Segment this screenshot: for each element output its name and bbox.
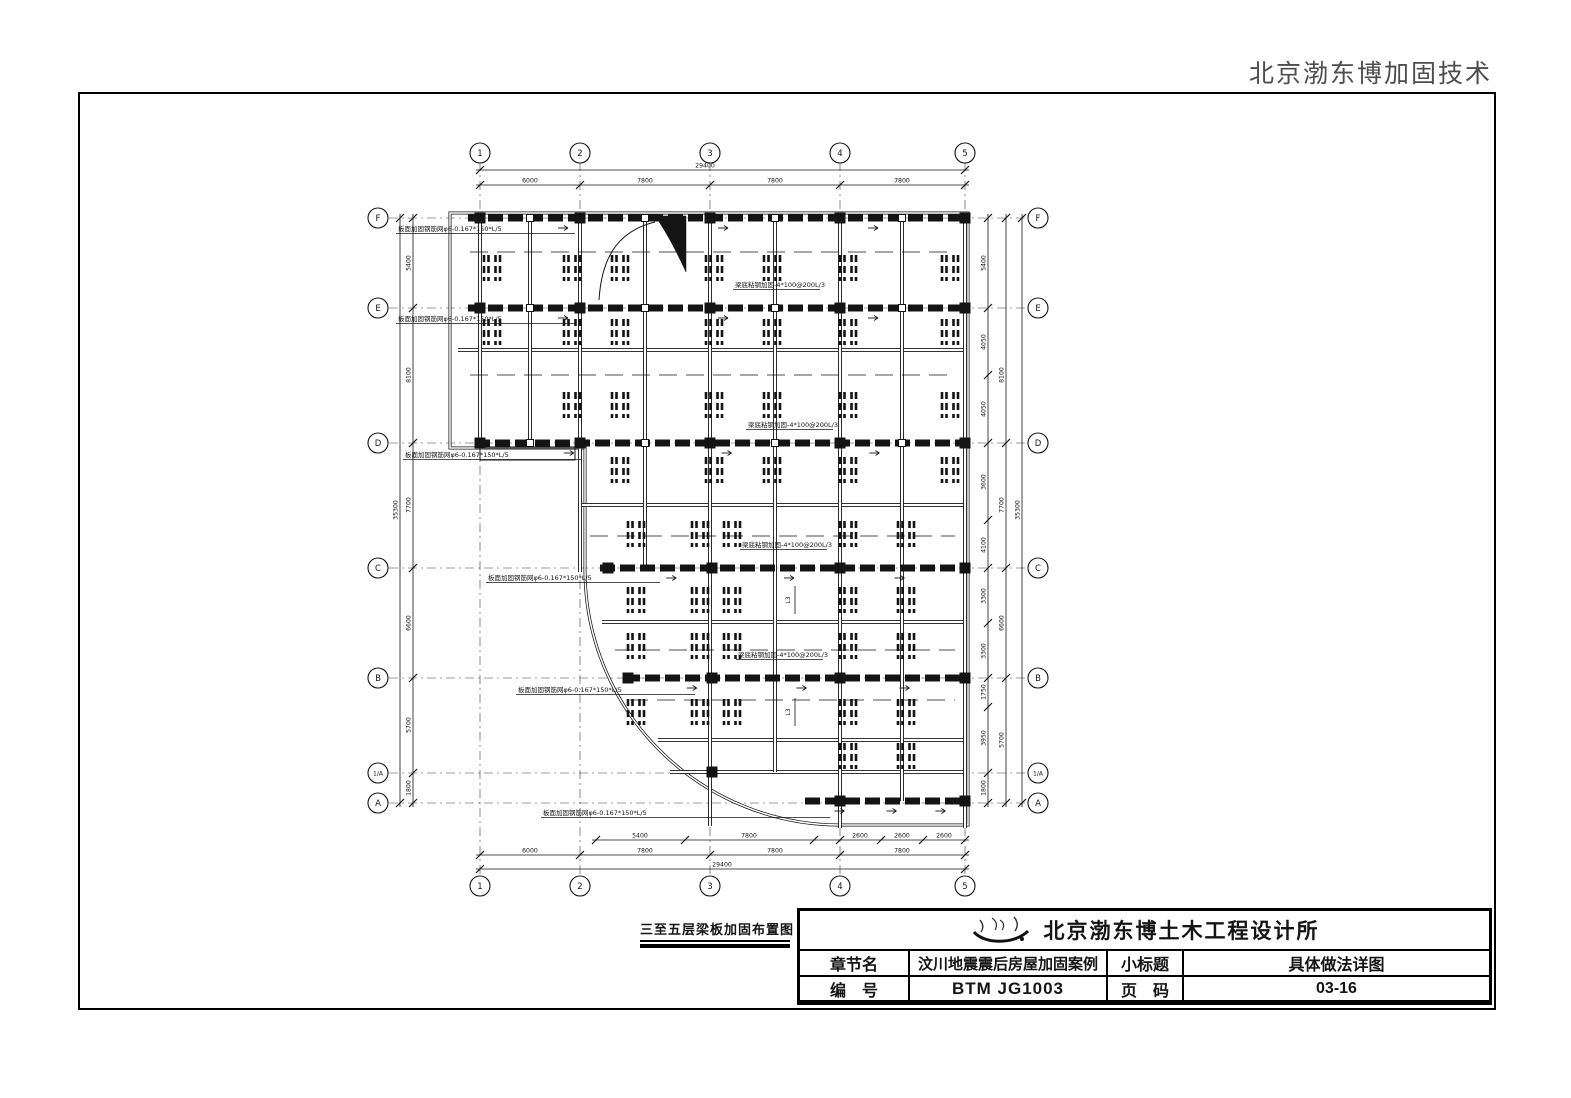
title-block: 北京渤东博土木工程设计所 章节名 汶川地震震后房屋加固案例 小标题 具体做法详图… <box>797 908 1492 1005</box>
svg-text:2600: 2600 <box>852 833 868 840</box>
calligraphy-signature-icon <box>970 914 1034 946</box>
svg-text:板面加固钢筋网φ6-0.167*150*L/5: 板面加固钢筋网φ6-0.167*150*L/5 <box>543 808 647 817</box>
svg-text:梁底粘钢加固-4*100@200L/3: 梁底粘钢加固-4*100@200L/3 <box>738 650 828 659</box>
svg-text:1800: 1800 <box>981 780 988 796</box>
svg-text:A: A <box>375 799 381 809</box>
svg-text:4: 4 <box>837 882 842 892</box>
svg-text:梁底粘钢加固-4*100@200L/3: 梁底粘钢加固-4*100@200L/3 <box>748 420 838 429</box>
figure-title-underline-thick <box>640 944 790 948</box>
svg-text:7800: 7800 <box>767 178 783 185</box>
title-block-company-row: 北京渤东博土木工程设计所 <box>800 911 1489 951</box>
svg-text:1: 1 <box>477 882 482 892</box>
svg-text:4: 4 <box>837 149 842 159</box>
svg-text:6000: 6000 <box>522 178 538 185</box>
page-label: 页 码 <box>1108 977 1184 1001</box>
title-block-row-chapter: 章节名 汶川地震震后房屋加固案例 小标题 具体做法详图 <box>800 951 1489 977</box>
svg-text:板面加固钢筋网φ6-0.167*150*L/5: 板面加固钢筋网φ6-0.167*150*L/5 <box>405 450 509 459</box>
svg-text:5700: 5700 <box>999 732 1006 748</box>
title-block-row-number: 编 号 BTM JG1003 页 码 03-16 <box>800 977 1489 1001</box>
svg-text:7800: 7800 <box>894 848 910 855</box>
svg-text:E: E <box>1035 304 1040 314</box>
svg-text:6600: 6600 <box>406 615 413 631</box>
svg-text:1/A: 1/A <box>373 770 384 777</box>
svg-text:29400: 29400 <box>695 163 715 170</box>
svg-text:8100: 8100 <box>406 367 413 383</box>
subtitle-value: 具体做法详图 <box>1184 951 1489 975</box>
svg-text:7700: 7700 <box>999 497 1006 513</box>
svg-text:35300: 35300 <box>393 500 400 520</box>
svg-text:L3: L3 <box>785 596 792 603</box>
svg-text:5: 5 <box>962 149 967 159</box>
svg-text:A: A <box>1035 799 1041 809</box>
sheet-page: 北京渤东博加固技术 294006000780078007800540078002… <box>0 0 1571 1098</box>
svg-text:1750: 1750 <box>981 684 988 700</box>
subtitle-label: 小标题 <box>1108 951 1184 975</box>
svg-text:3300: 3300 <box>981 588 988 604</box>
svg-text:板面加固钢筋网φ6-0.167*150*L/5: 板面加固钢筋网φ6-0.167*150*L/5 <box>398 224 502 233</box>
svg-text:1800: 1800 <box>406 780 413 796</box>
chapter-value: 汶川地震震后房屋加固案例 <box>910 951 1108 975</box>
figure-title-underline-thin <box>640 940 790 942</box>
svg-text:3950: 3950 <box>981 730 988 746</box>
svg-text:梁底粘钢加固-4*100@200L/3: 梁底粘钢加固-4*100@200L/3 <box>735 280 825 289</box>
svg-text:5: 5 <box>962 882 967 892</box>
svg-text:7700: 7700 <box>406 497 413 513</box>
svg-text:7800: 7800 <box>637 178 653 185</box>
page-value: 03-16 <box>1184 977 1489 1001</box>
figure-title-text: 三至五层梁板加固布置图 <box>640 919 790 938</box>
company-name: 北京渤东博土木工程设计所 <box>1044 915 1320 945</box>
svg-text:板面加固钢筋网φ6-0.167*150*L/5: 板面加固钢筋网φ6-0.167*150*L/5 <box>518 685 622 694</box>
svg-text:D: D <box>375 439 382 449</box>
svg-text:C: C <box>375 564 381 574</box>
svg-text:8100: 8100 <box>999 367 1006 383</box>
svg-text:梁底粘钢加固-4*100@200L/3: 梁底粘钢加固-4*100@200L/3 <box>742 540 832 549</box>
svg-text:5400: 5400 <box>981 255 988 271</box>
svg-text:5400: 5400 <box>632 833 648 840</box>
svg-text:4050: 4050 <box>981 334 988 350</box>
svg-text:29400: 29400 <box>712 862 732 869</box>
svg-text:3300: 3300 <box>981 643 988 659</box>
svg-text:7800: 7800 <box>894 178 910 185</box>
svg-text:2600: 2600 <box>894 833 910 840</box>
svg-text:3: 3 <box>707 149 712 159</box>
svg-text:35300: 35300 <box>1015 500 1022 520</box>
svg-text:D: D <box>1035 439 1042 449</box>
svg-text:F: F <box>376 214 381 224</box>
svg-text:7800: 7800 <box>767 848 783 855</box>
svg-text:B: B <box>375 674 381 684</box>
svg-text:4100: 4100 <box>981 537 988 553</box>
svg-text:L3: L3 <box>785 708 792 715</box>
svg-text:3600: 3600 <box>981 474 988 490</box>
svg-text:7800: 7800 <box>741 833 757 840</box>
figure-title: 三至五层梁板加固布置图 <box>640 919 790 948</box>
number-label: 编 号 <box>800 977 910 1001</box>
svg-text:2: 2 <box>577 149 582 159</box>
svg-text:F: F <box>1036 214 1041 224</box>
svg-text:4050: 4050 <box>981 401 988 417</box>
svg-text:6000: 6000 <box>522 848 538 855</box>
svg-text:3: 3 <box>707 882 712 892</box>
svg-text:C: C <box>1035 564 1041 574</box>
svg-text:2600: 2600 <box>936 833 952 840</box>
svg-text:E: E <box>375 304 380 314</box>
svg-text:6600: 6600 <box>999 615 1006 631</box>
svg-text:7800: 7800 <box>637 848 653 855</box>
svg-text:1: 1 <box>477 149 482 159</box>
svg-text:2: 2 <box>577 882 582 892</box>
svg-text:5400: 5400 <box>406 255 413 271</box>
chapter-label: 章节名 <box>800 951 910 975</box>
number-value: BTM JG1003 <box>910 977 1108 1001</box>
svg-text:板面加固钢筋网φ6-0.167*150*L/5: 板面加固钢筋网φ6-0.167*150*L/5 <box>488 573 592 582</box>
svg-text:板面加固钢筋网φ6-0.167*150*L/5: 板面加固钢筋网φ6-0.167*150*L/5 <box>398 314 502 323</box>
svg-text:5700: 5700 <box>406 717 413 733</box>
svg-text:1/A: 1/A <box>1033 770 1044 777</box>
svg-text:B: B <box>1035 674 1041 684</box>
